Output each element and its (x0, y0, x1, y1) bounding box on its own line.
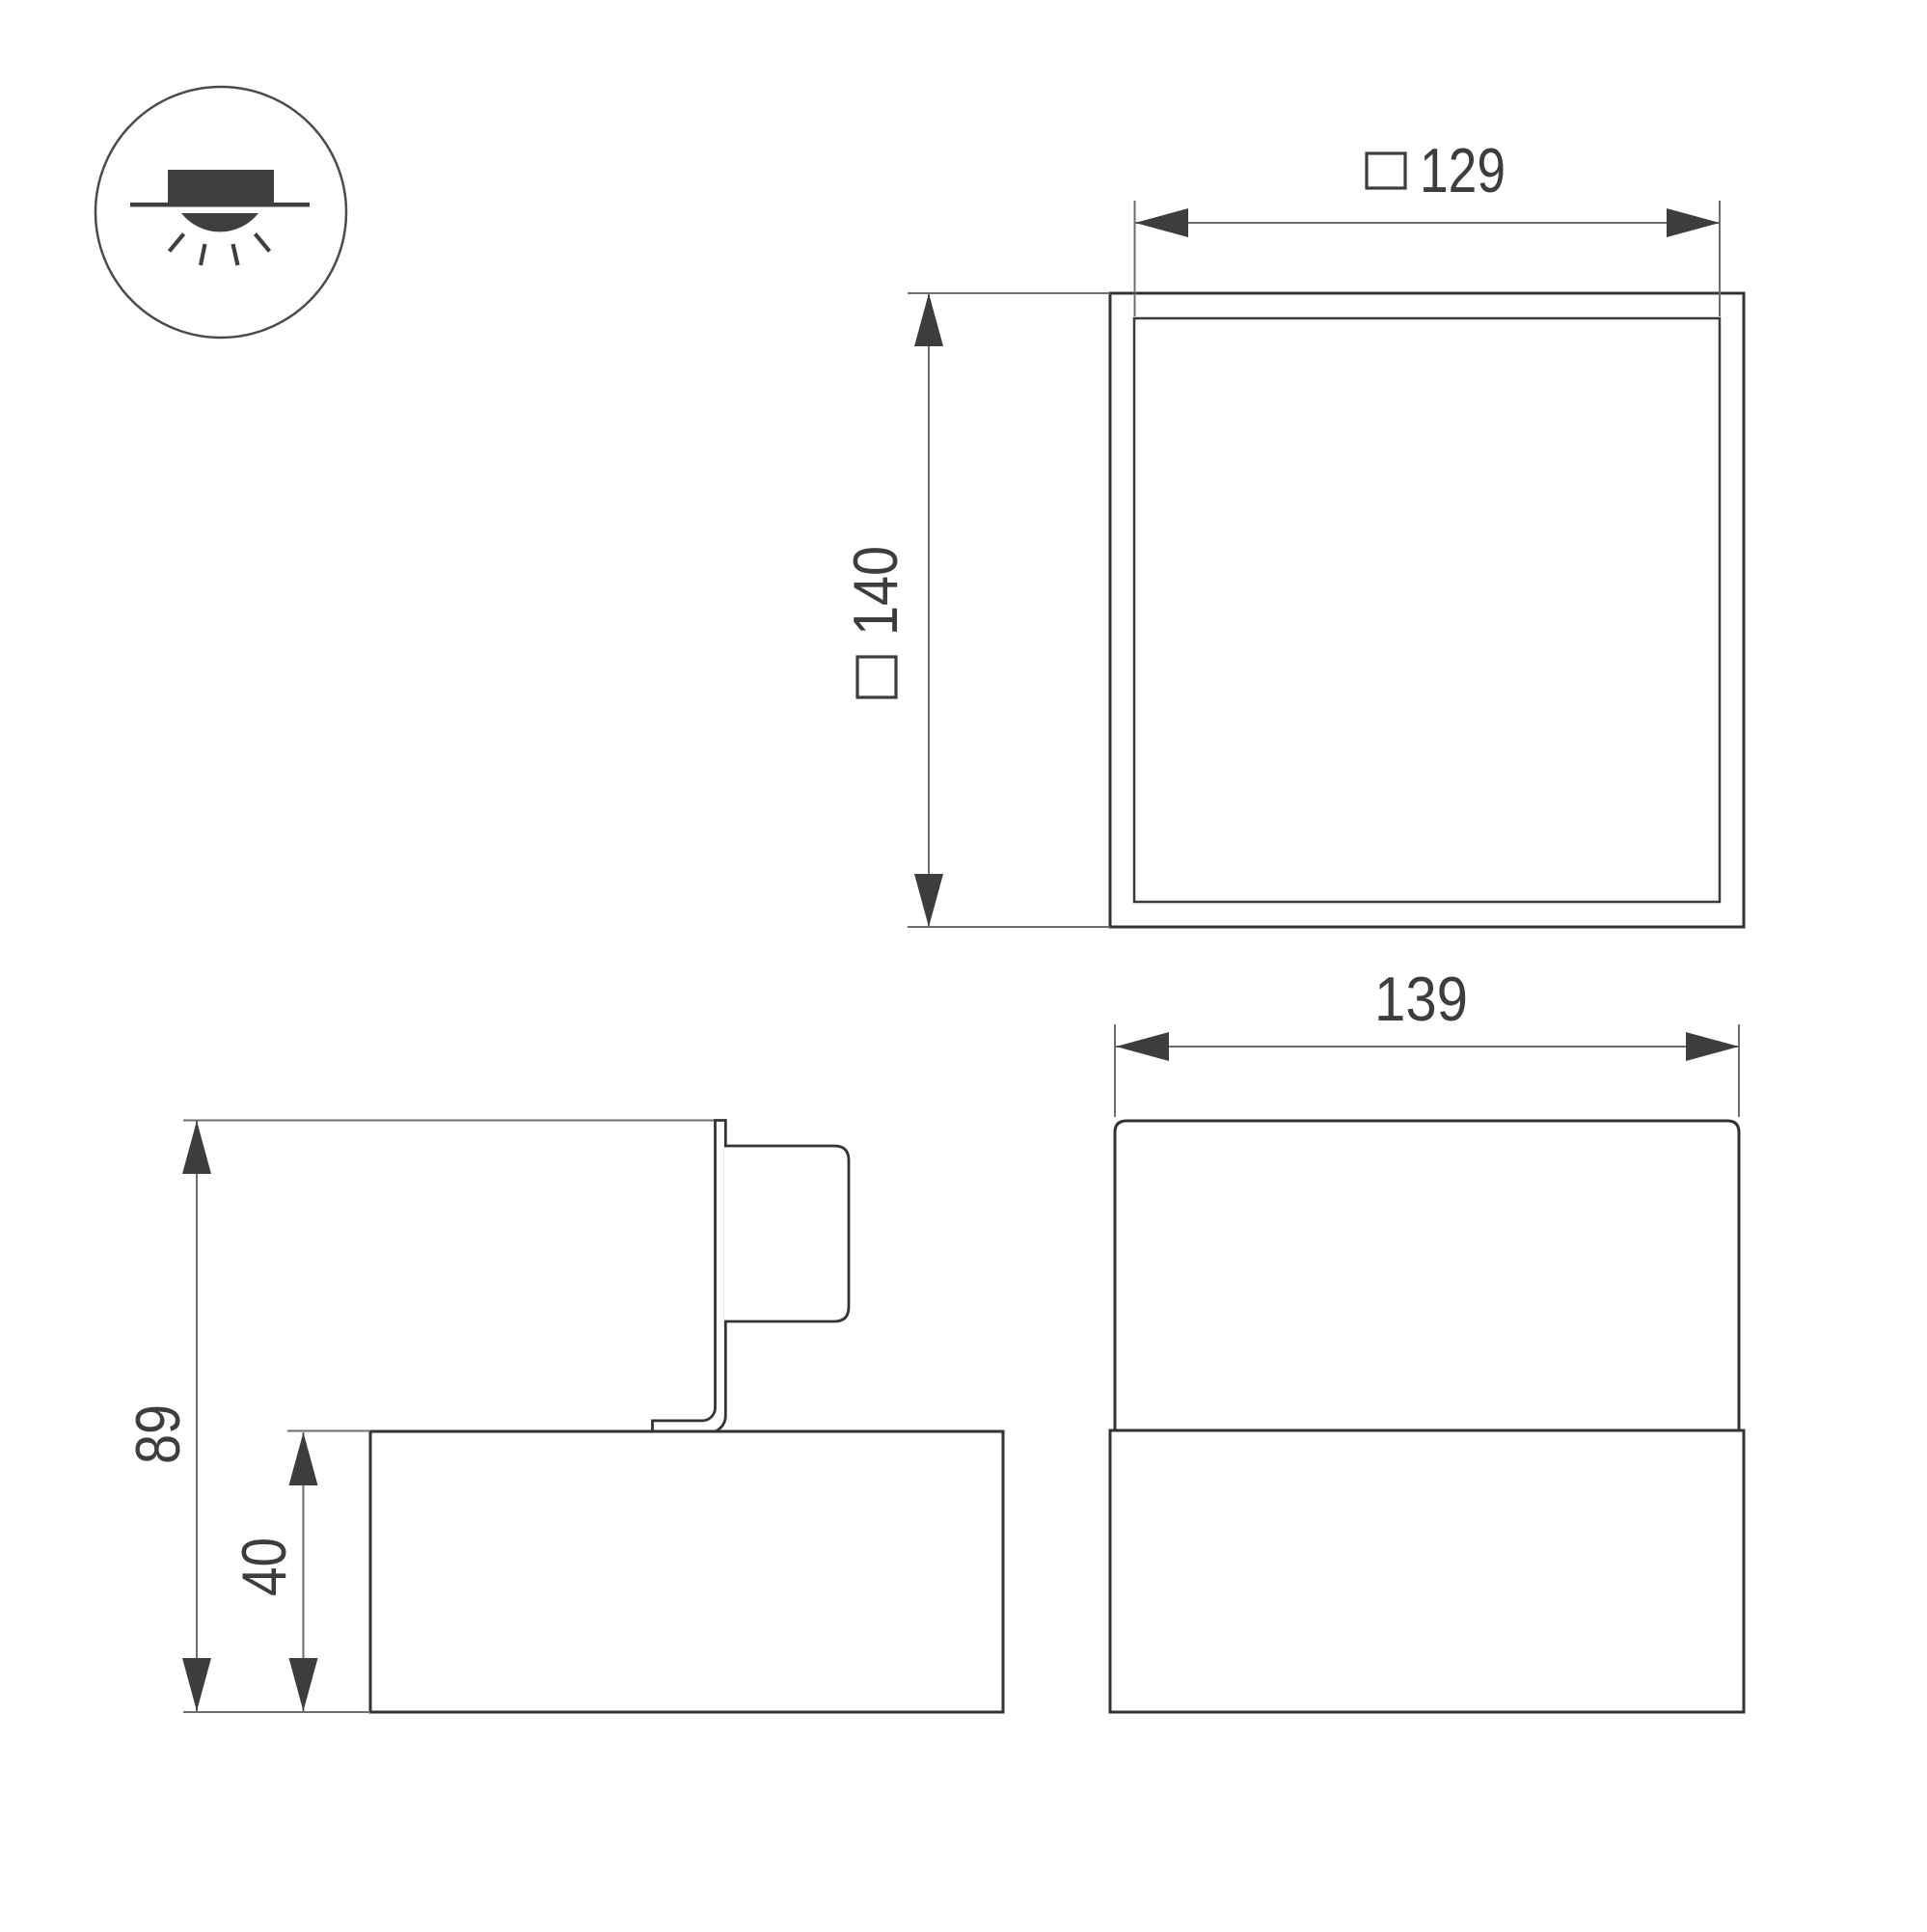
svg-text:140: 140 (840, 546, 910, 636)
svg-text:89: 89 (122, 1404, 193, 1464)
svg-text:40: 40 (229, 1537, 299, 1596)
svg-text:129: 129 (1420, 135, 1506, 205)
svg-text:139: 139 (1374, 964, 1468, 1034)
